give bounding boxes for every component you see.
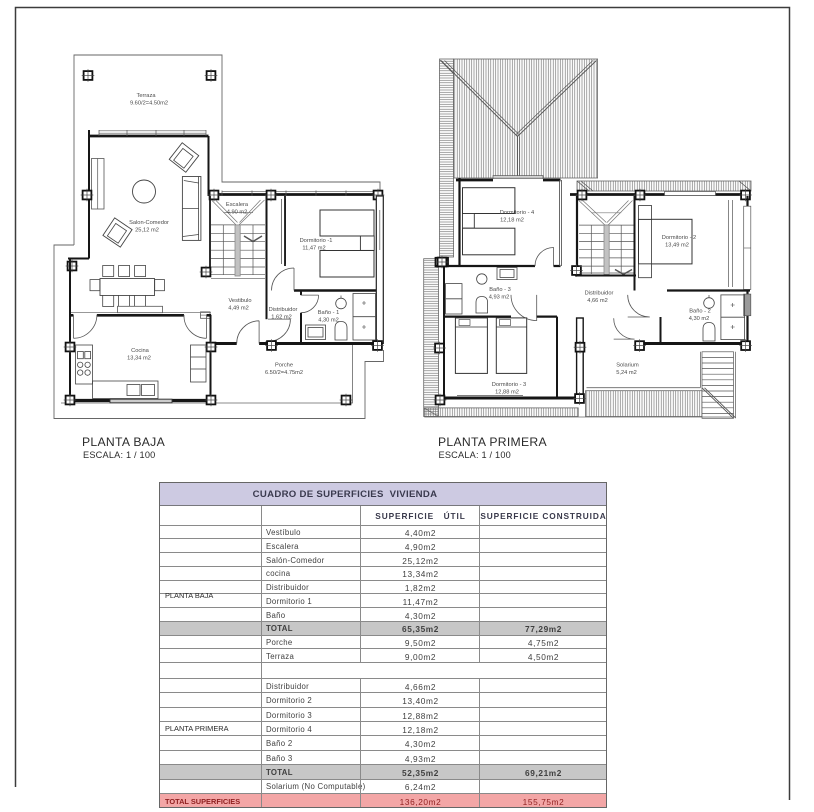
svg-text:4,93 m2: 4,93 m2 (489, 295, 510, 301)
svg-text:1,62 m2: 1,62 m2 (271, 315, 292, 321)
svg-text:12,18 m2: 12,18 m2 (500, 218, 524, 224)
svg-text:ESCALA: 1 / 100: ESCALA: 1 / 100 (83, 450, 155, 460)
svg-text:4,30 m2: 4,30 m2 (318, 318, 339, 324)
svg-text:Dormitorio - 3: Dormitorio - 3 (492, 382, 526, 388)
svg-text:Distribuidor: Distribuidor (585, 291, 614, 297)
svg-text:Dormitorio -1: Dormitorio -1 (300, 238, 333, 244)
svg-text:Dormitorio - 2: Dormitorio - 2 (662, 235, 696, 241)
svg-text:4,66 m2: 4,66 m2 (587, 298, 608, 304)
svg-text:Baño - 3: Baño - 3 (489, 287, 511, 293)
svg-text:13,49 m2: 13,49 m2 (665, 243, 689, 249)
svg-text:PLANTA BAJA: PLANTA BAJA (82, 435, 166, 449)
svg-text:PLANTA PRIMERA: PLANTA PRIMERA (438, 435, 548, 449)
svg-text:5,24 m2: 5,24 m2 (616, 370, 637, 376)
svg-text:9.60/2=4.50m2: 9.60/2=4.50m2 (130, 101, 168, 107)
svg-text:4,49 m2: 4,49 m2 (228, 306, 249, 312)
svg-text:Vestibulo: Vestibulo (228, 298, 251, 304)
svg-text:12,88 m2: 12,88 m2 (495, 390, 519, 396)
svg-text:4.90 m2: 4.90 m2 (227, 210, 248, 216)
svg-text:Cocina: Cocina (131, 348, 150, 354)
svg-text:Baño - 2: Baño - 2 (689, 309, 711, 315)
svg-text:25,12 m2: 25,12 m2 (135, 228, 159, 234)
svg-text:ESCALA: 1 / 100: ESCALA: 1 / 100 (439, 450, 511, 460)
svg-text:Solarium: Solarium (616, 363, 639, 369)
svg-text:Escalera: Escalera (226, 202, 249, 208)
svg-text:4,30 m2: 4,30 m2 (689, 316, 710, 322)
svg-text:13,34 m2: 13,34 m2 (127, 356, 151, 362)
svg-text:11,47 m2: 11,47 m2 (302, 246, 325, 252)
svg-text:6.50/2=4.75m2: 6.50/2=4.75m2 (265, 370, 303, 376)
svg-text:Salon-Comedor: Salon-Comedor (129, 220, 169, 226)
svg-text:Dormitorio - 4: Dormitorio - 4 (500, 210, 534, 216)
svg-text:Distribuidor: Distribuidor (269, 307, 298, 313)
svg-text:Baño - 1: Baño - 1 (318, 310, 340, 316)
svg-text:Porche: Porche (275, 363, 293, 369)
svg-text:Terraza: Terraza (137, 93, 157, 99)
